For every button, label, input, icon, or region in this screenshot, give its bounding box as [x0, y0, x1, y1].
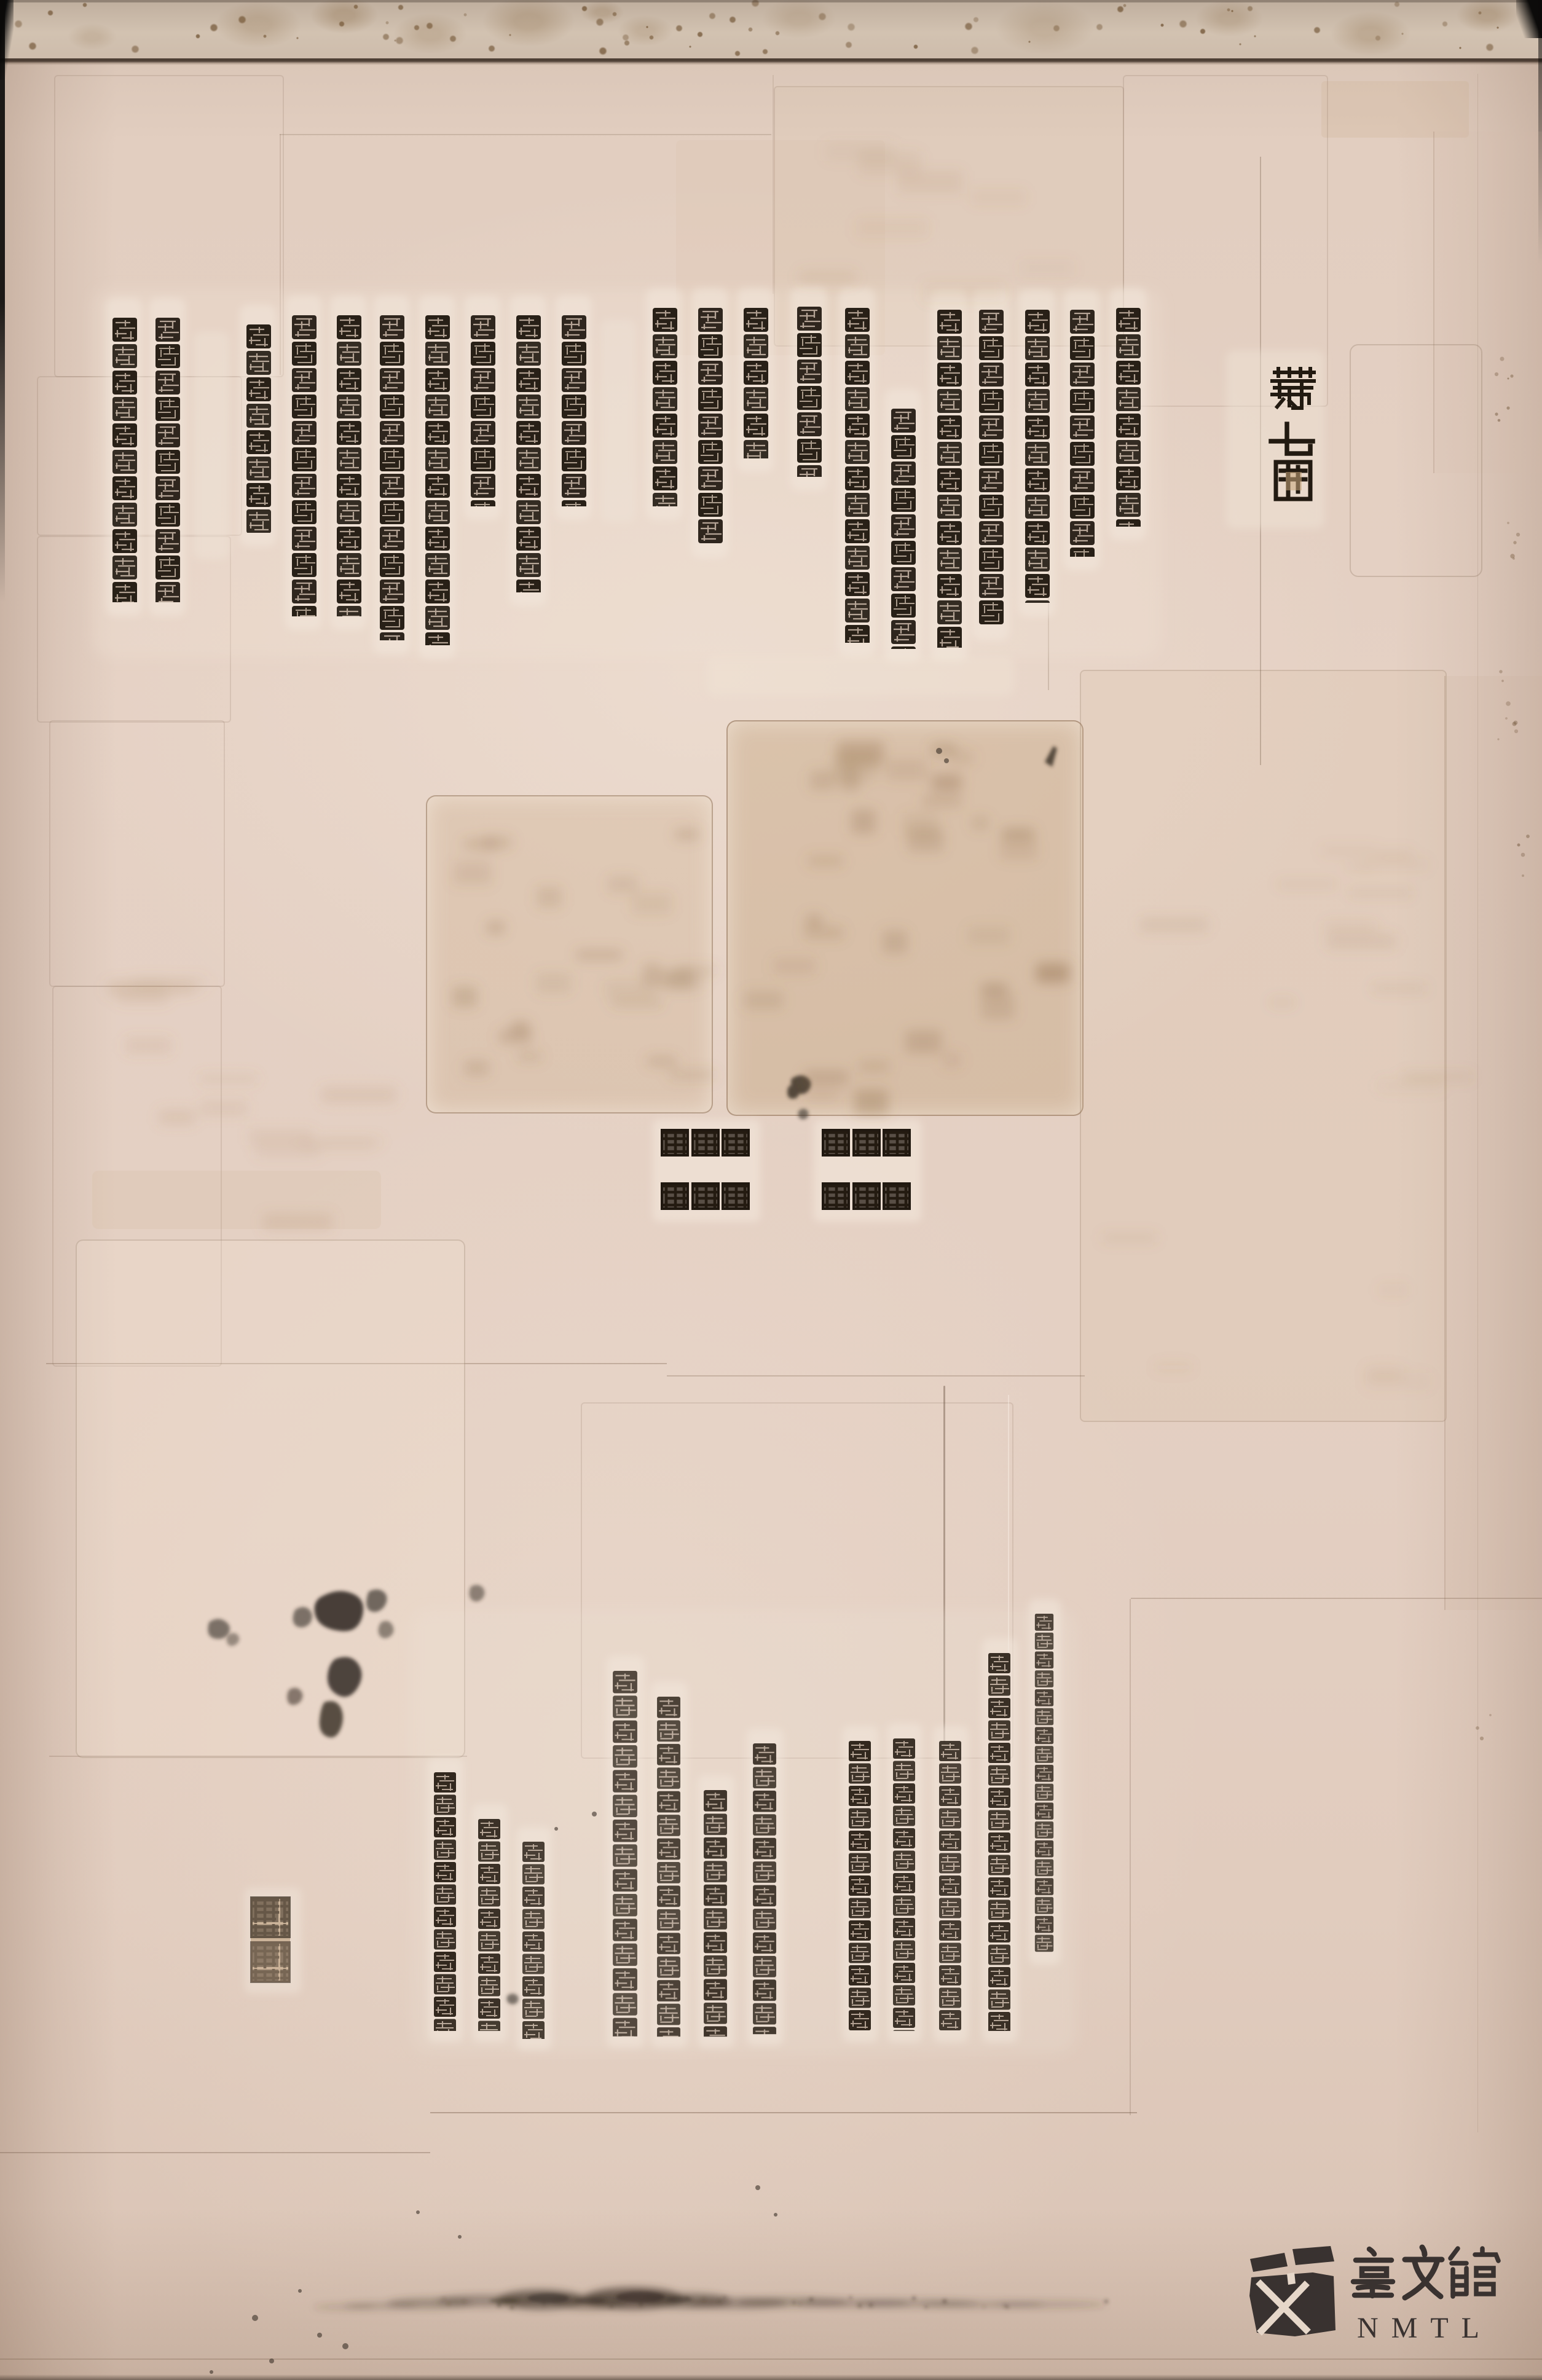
- svg-text:NMTL: NMTL: [1357, 2312, 1492, 2344]
